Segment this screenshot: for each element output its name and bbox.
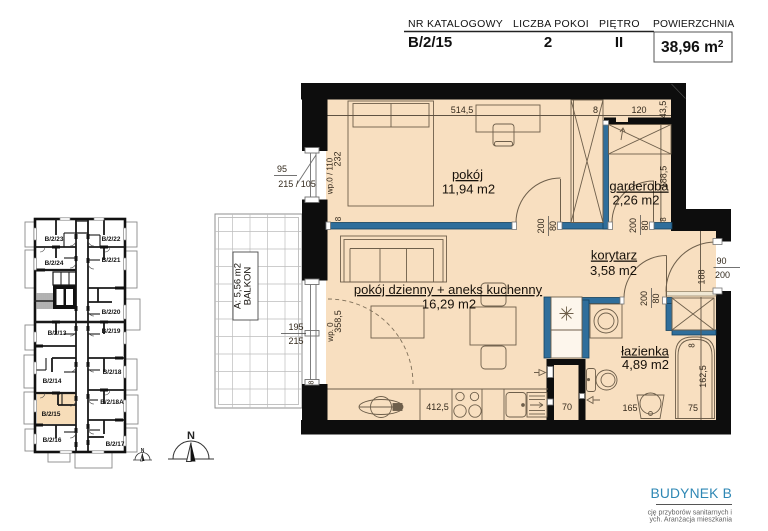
svg-text:165: 165 <box>622 403 637 413</box>
svg-text:188: 188 <box>697 269 707 284</box>
svg-text:wp. 0: wp. 0 <box>326 322 335 343</box>
svg-text:16,29 m2: 16,29 m2 <box>422 297 476 312</box>
svg-text:N: N <box>141 448 145 454</box>
svg-text:B/2/20: B/2/20 <box>102 309 121 316</box>
svg-text:90: 90 <box>716 256 726 266</box>
svg-text:514,5: 514,5 <box>451 105 474 115</box>
svg-text:215 / 105: 215 / 105 <box>278 179 316 189</box>
svg-text:II: II <box>615 34 623 51</box>
svg-text:75: 75 <box>688 403 698 413</box>
svg-text:B/2/17: B/2/17 <box>106 441 125 448</box>
svg-text:B/2/21: B/2/21 <box>102 257 121 264</box>
svg-text:8: 8 <box>593 105 598 115</box>
svg-text:A: 5,56 m2: A: 5,56 m2 <box>233 263 244 309</box>
svg-text:8: 8 <box>688 343 697 348</box>
svg-text:120: 120 <box>631 105 646 115</box>
svg-text:200: 200 <box>639 291 649 306</box>
svg-text:cję przyborów sanitarnych i: cję przyborów sanitarnych i <box>648 510 733 517</box>
svg-text:43,5: 43,5 <box>658 101 668 119</box>
svg-text:NR KATALOGOWY: NR KATALOGOWY <box>408 18 503 30</box>
svg-text:B/2/13: B/2/13 <box>48 330 67 337</box>
svg-text:BALKON: BALKON <box>243 267 254 306</box>
svg-text:3,58 m2: 3,58 m2 <box>590 263 637 278</box>
svg-text:2,26 m2: 2,26 m2 <box>613 193 660 208</box>
svg-text:B/2/15: B/2/15 <box>408 34 452 51</box>
svg-text:200: 200 <box>715 270 730 280</box>
svg-text:B/2/15: B/2/15 <box>42 411 61 418</box>
svg-text:B/2/18A: B/2/18A <box>100 399 124 406</box>
svg-text:pokój dzienny + aneks kuchenny: pokój dzienny + aneks kuchenny <box>354 282 543 297</box>
svg-text:38,96 m2: 38,96 m2 <box>661 39 724 56</box>
svg-text:POWIERZCHNIA: POWIERZCHNIA <box>653 19 734 30</box>
svg-text:412,5: 412,5 <box>426 402 449 412</box>
svg-text:80: 80 <box>640 220 650 230</box>
svg-text:8: 8 <box>659 217 668 222</box>
svg-text:95: 95 <box>277 164 287 174</box>
svg-text:8: 8 <box>309 380 316 384</box>
svg-text:B/2/24: B/2/24 <box>45 260 64 267</box>
svg-text:162,5: 162,5 <box>698 365 708 388</box>
svg-text:wp.0 / 110: wp.0 / 110 <box>326 157 335 195</box>
svg-text:garderoba: garderoba <box>609 179 669 194</box>
svg-text:N: N <box>187 430 195 442</box>
svg-text:80: 80 <box>651 293 661 303</box>
svg-text:200: 200 <box>536 218 546 233</box>
svg-text:200: 200 <box>628 218 638 233</box>
svg-text:70: 70 <box>562 402 572 412</box>
svg-text:PIĘTRO: PIĘTRO <box>599 18 640 30</box>
svg-text:BUDYNEK B: BUDYNEK B <box>650 486 732 501</box>
svg-text:4,89 m2: 4,89 m2 <box>622 357 669 372</box>
svg-text:korytarz: korytarz <box>591 248 637 263</box>
svg-text:B/2/22: B/2/22 <box>102 236 121 243</box>
svg-text:215: 215 <box>288 336 303 346</box>
svg-text:8: 8 <box>334 216 343 221</box>
svg-text:ych. Aranżacja mieszkania: ych. Aranżacja mieszkania <box>650 517 733 524</box>
svg-text:pokój: pokój <box>452 167 483 182</box>
svg-text:2: 2 <box>544 34 552 51</box>
svg-text:LICZBA POKOI: LICZBA POKOI <box>513 18 589 30</box>
svg-text:80: 80 <box>548 221 558 231</box>
svg-text:B/2/18: B/2/18 <box>103 369 122 376</box>
svg-text:11,94 m2: 11,94 m2 <box>442 182 495 197</box>
svg-text:B/2/19: B/2/19 <box>102 328 121 335</box>
svg-text:B/2/23: B/2/23 <box>45 236 64 243</box>
svg-text:B/2/16: B/2/16 <box>43 437 62 444</box>
svg-text:B/2/14: B/2/14 <box>43 378 62 385</box>
svg-text:195: 195 <box>288 322 303 332</box>
